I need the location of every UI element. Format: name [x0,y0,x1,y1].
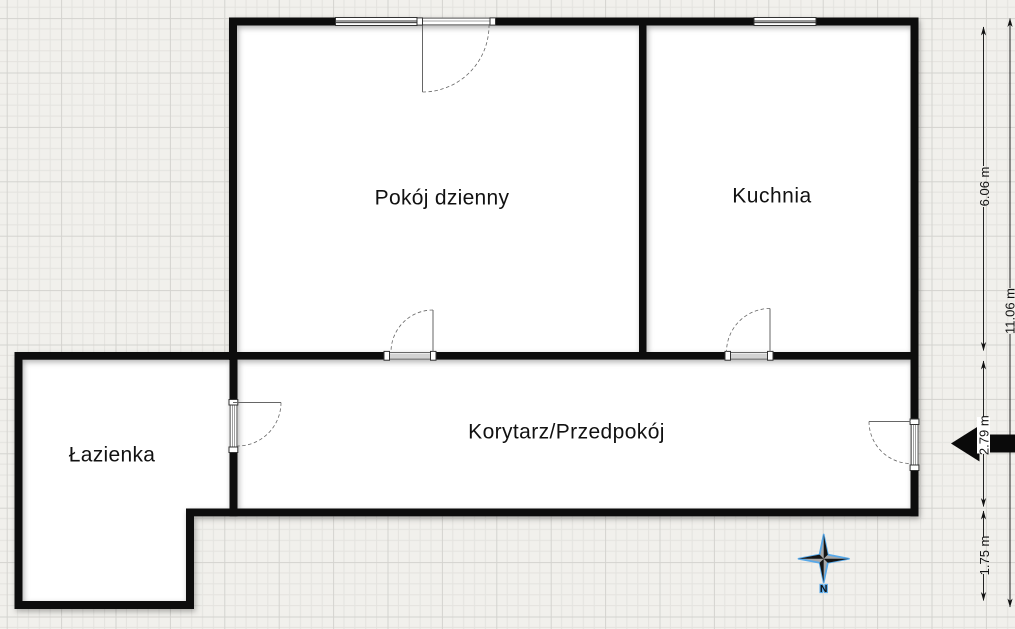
svg-text:11.06 m: 11.06 m [1003,288,1015,334]
svg-text:N: N [820,583,828,595]
svg-text:1.75 m: 1.75 m [977,536,992,576]
svg-text:2.79 m: 2.79 m [977,415,992,455]
svg-text:6.06 m: 6.06 m [977,167,992,207]
svg-text:Pokój dzienny: Pokój dzienny [375,187,510,210]
svg-text:Kuchnia: Kuchnia [732,185,811,208]
svg-text:Łazienka: Łazienka [69,444,155,467]
svg-text:Korytarz/Przedpokój: Korytarz/Przedpokój [468,421,665,444]
